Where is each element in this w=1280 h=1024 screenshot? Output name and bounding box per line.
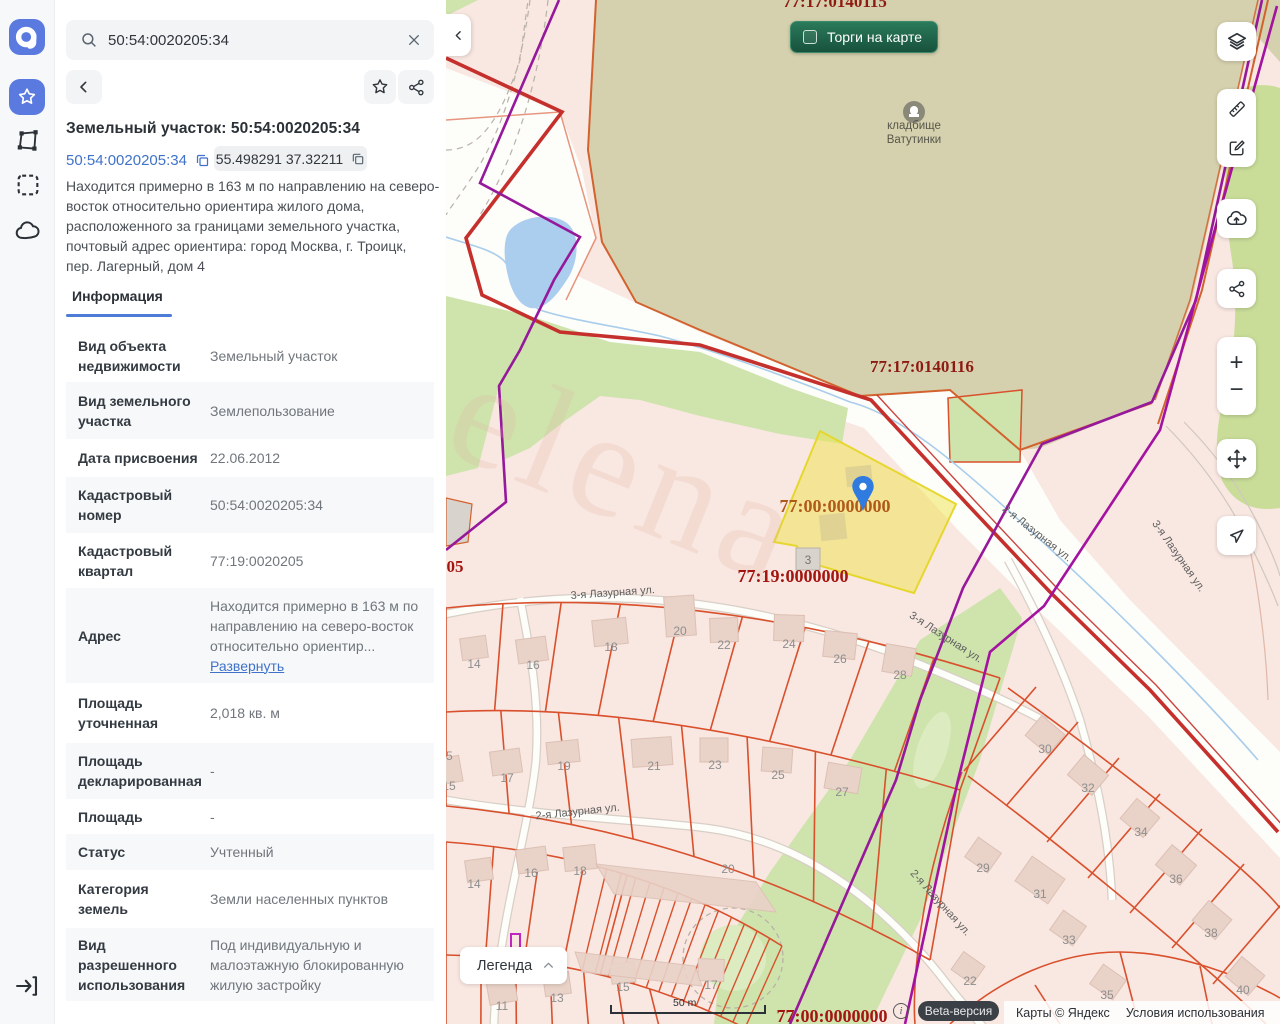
svg-text:15: 15 xyxy=(446,779,456,793)
svg-text:19: 19 xyxy=(557,759,571,773)
svg-text:15: 15 xyxy=(616,980,630,994)
svg-text:3: 3 xyxy=(805,553,812,567)
svg-text:20: 20 xyxy=(673,624,687,638)
svg-text:22: 22 xyxy=(963,974,977,988)
svg-text:28: 28 xyxy=(893,668,907,682)
svg-text:32: 32 xyxy=(1081,781,1095,795)
svg-text:26: 26 xyxy=(833,652,847,666)
svg-text:77:17:0140115: 77:17:0140115 xyxy=(783,0,887,11)
svg-text:31: 31 xyxy=(1033,887,1047,901)
svg-text:18: 18 xyxy=(573,864,587,878)
svg-text:14: 14 xyxy=(467,877,481,891)
svg-text:15: 15 xyxy=(446,749,453,763)
svg-text:21: 21 xyxy=(647,759,661,773)
svg-text:38: 38 xyxy=(1204,926,1218,940)
svg-text:17: 17 xyxy=(500,771,514,785)
svg-text:77:00:0000000: 77:00:0000000 xyxy=(780,496,891,516)
svg-text:30: 30 xyxy=(1038,742,1052,756)
svg-text:77:00:0000000: 77:00:0000000 xyxy=(777,1006,888,1024)
svg-text:77:19:0000000: 77:19:0000000 xyxy=(738,566,849,586)
svg-text:05: 05 xyxy=(447,557,464,576)
svg-text:кладбище: кладбище xyxy=(887,120,941,132)
svg-text:11: 11 xyxy=(496,999,509,1013)
svg-text:77:17:0140116: 77:17:0140116 xyxy=(870,357,974,376)
svg-text:18: 18 xyxy=(604,640,618,654)
svg-text:22: 22 xyxy=(717,638,731,652)
svg-text:16: 16 xyxy=(526,658,540,672)
svg-text:35: 35 xyxy=(1100,988,1114,1002)
svg-text:17: 17 xyxy=(704,978,718,992)
svg-text:25: 25 xyxy=(771,768,785,782)
svg-text:20: 20 xyxy=(721,862,735,876)
svg-text:40: 40 xyxy=(1236,983,1250,997)
svg-text:34: 34 xyxy=(1134,825,1148,839)
svg-text:36: 36 xyxy=(1169,872,1183,886)
svg-text:Ватутинки: Ватутинки xyxy=(887,134,941,146)
svg-text:27: 27 xyxy=(835,785,849,799)
svg-text:23: 23 xyxy=(708,758,722,772)
svg-text:13: 13 xyxy=(550,991,564,1005)
svg-text:14: 14 xyxy=(467,657,481,671)
svg-text:16: 16 xyxy=(524,866,538,880)
svg-text:24: 24 xyxy=(782,637,796,651)
svg-text:29: 29 xyxy=(976,861,990,875)
svg-text:33: 33 xyxy=(1062,933,1076,947)
